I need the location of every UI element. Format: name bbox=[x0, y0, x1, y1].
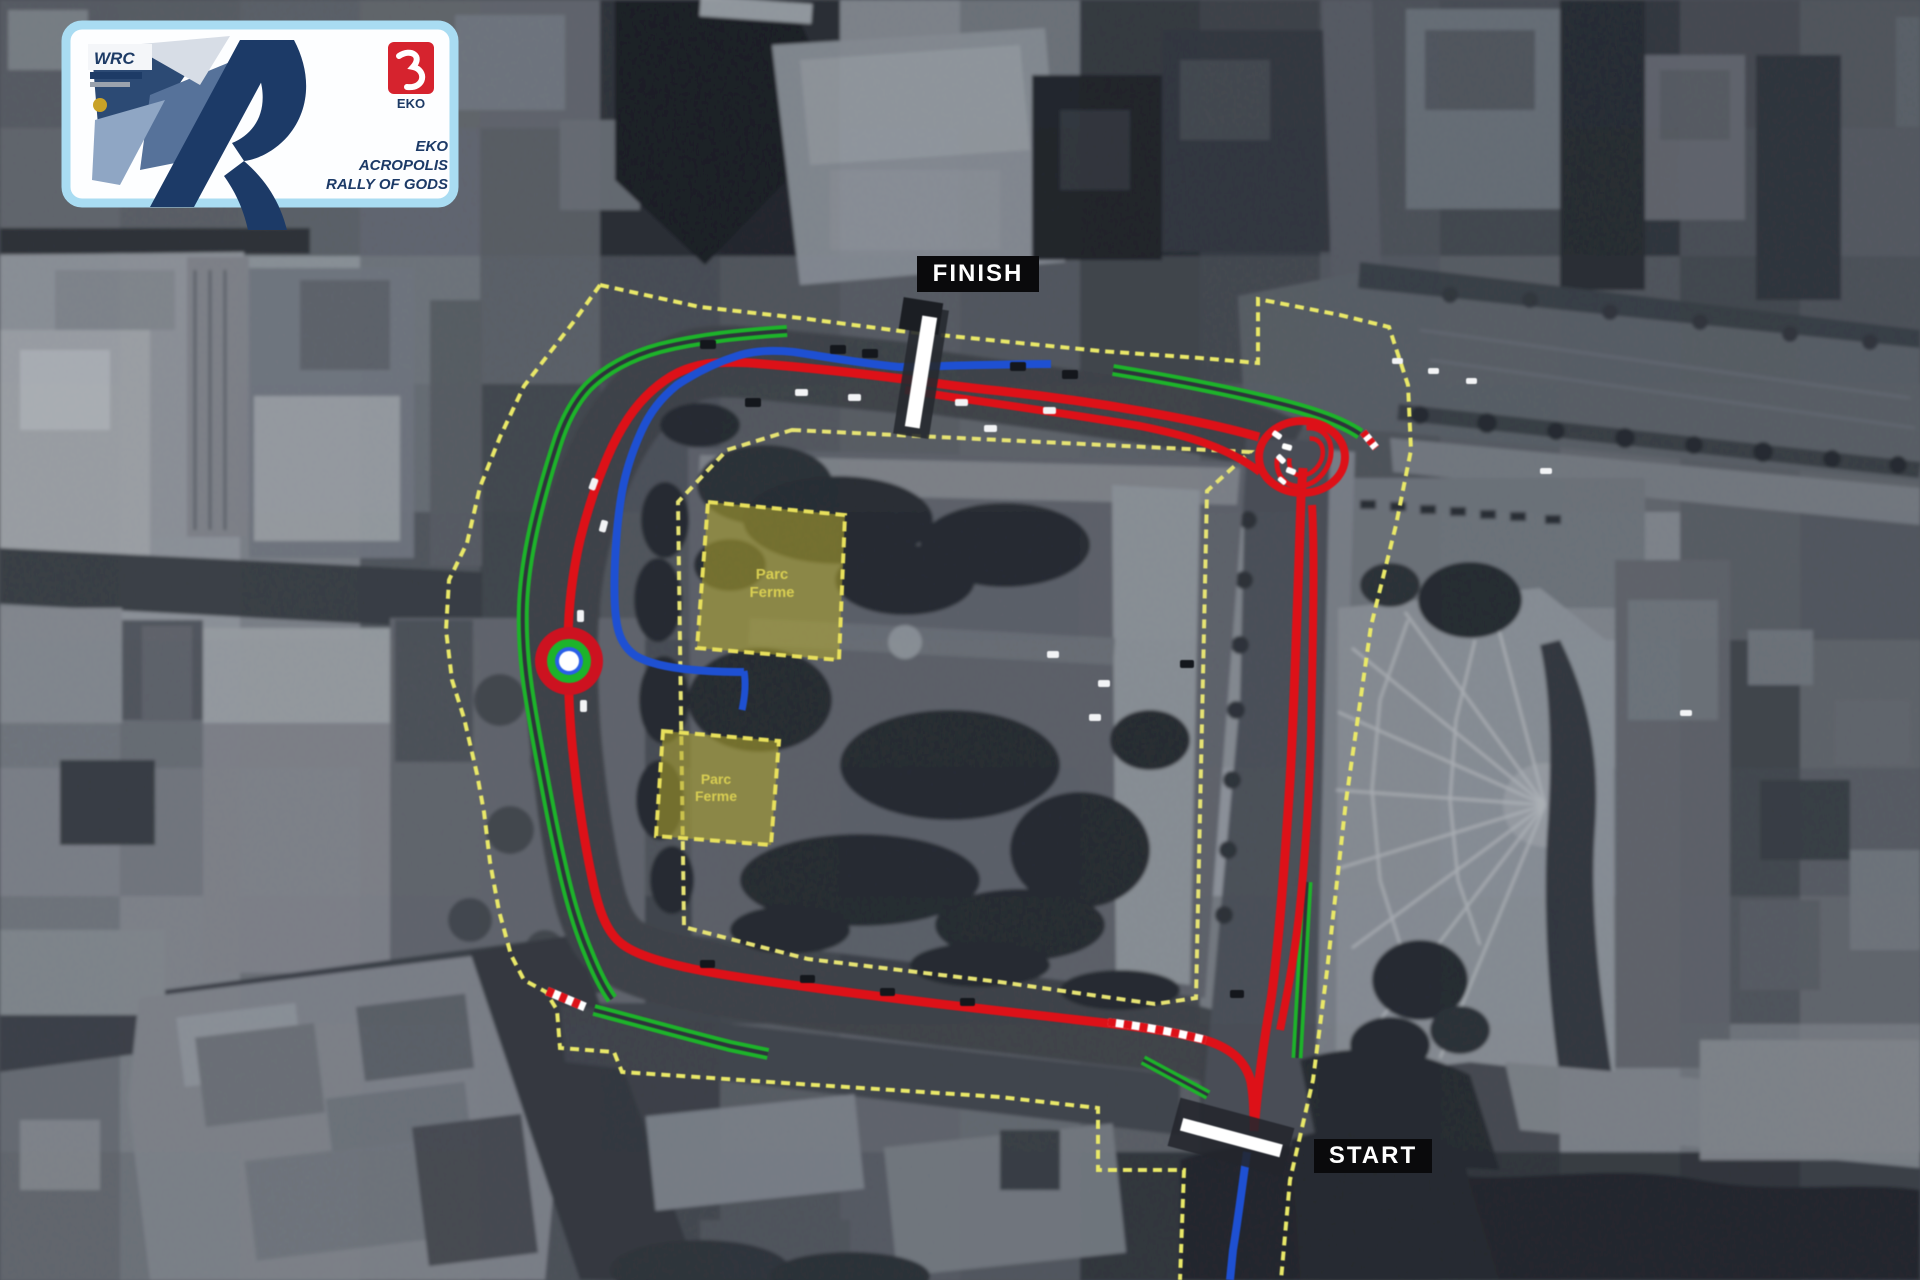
svg-text:Ferme: Ferme bbox=[695, 788, 737, 804]
svg-text:Parc: Parc bbox=[756, 566, 789, 583]
svg-text:EKO: EKO bbox=[397, 96, 425, 111]
svg-text:ACROPOLIS: ACROPOLIS bbox=[358, 157, 448, 174]
svg-text:Parc: Parc bbox=[701, 771, 732, 787]
svg-text:EKO: EKO bbox=[415, 138, 448, 155]
svg-text:RALLY OF GODS: RALLY OF GODS bbox=[326, 176, 448, 193]
svg-text:WRC: WRC bbox=[94, 49, 135, 68]
svg-text:Ferme: Ferme bbox=[749, 584, 794, 601]
